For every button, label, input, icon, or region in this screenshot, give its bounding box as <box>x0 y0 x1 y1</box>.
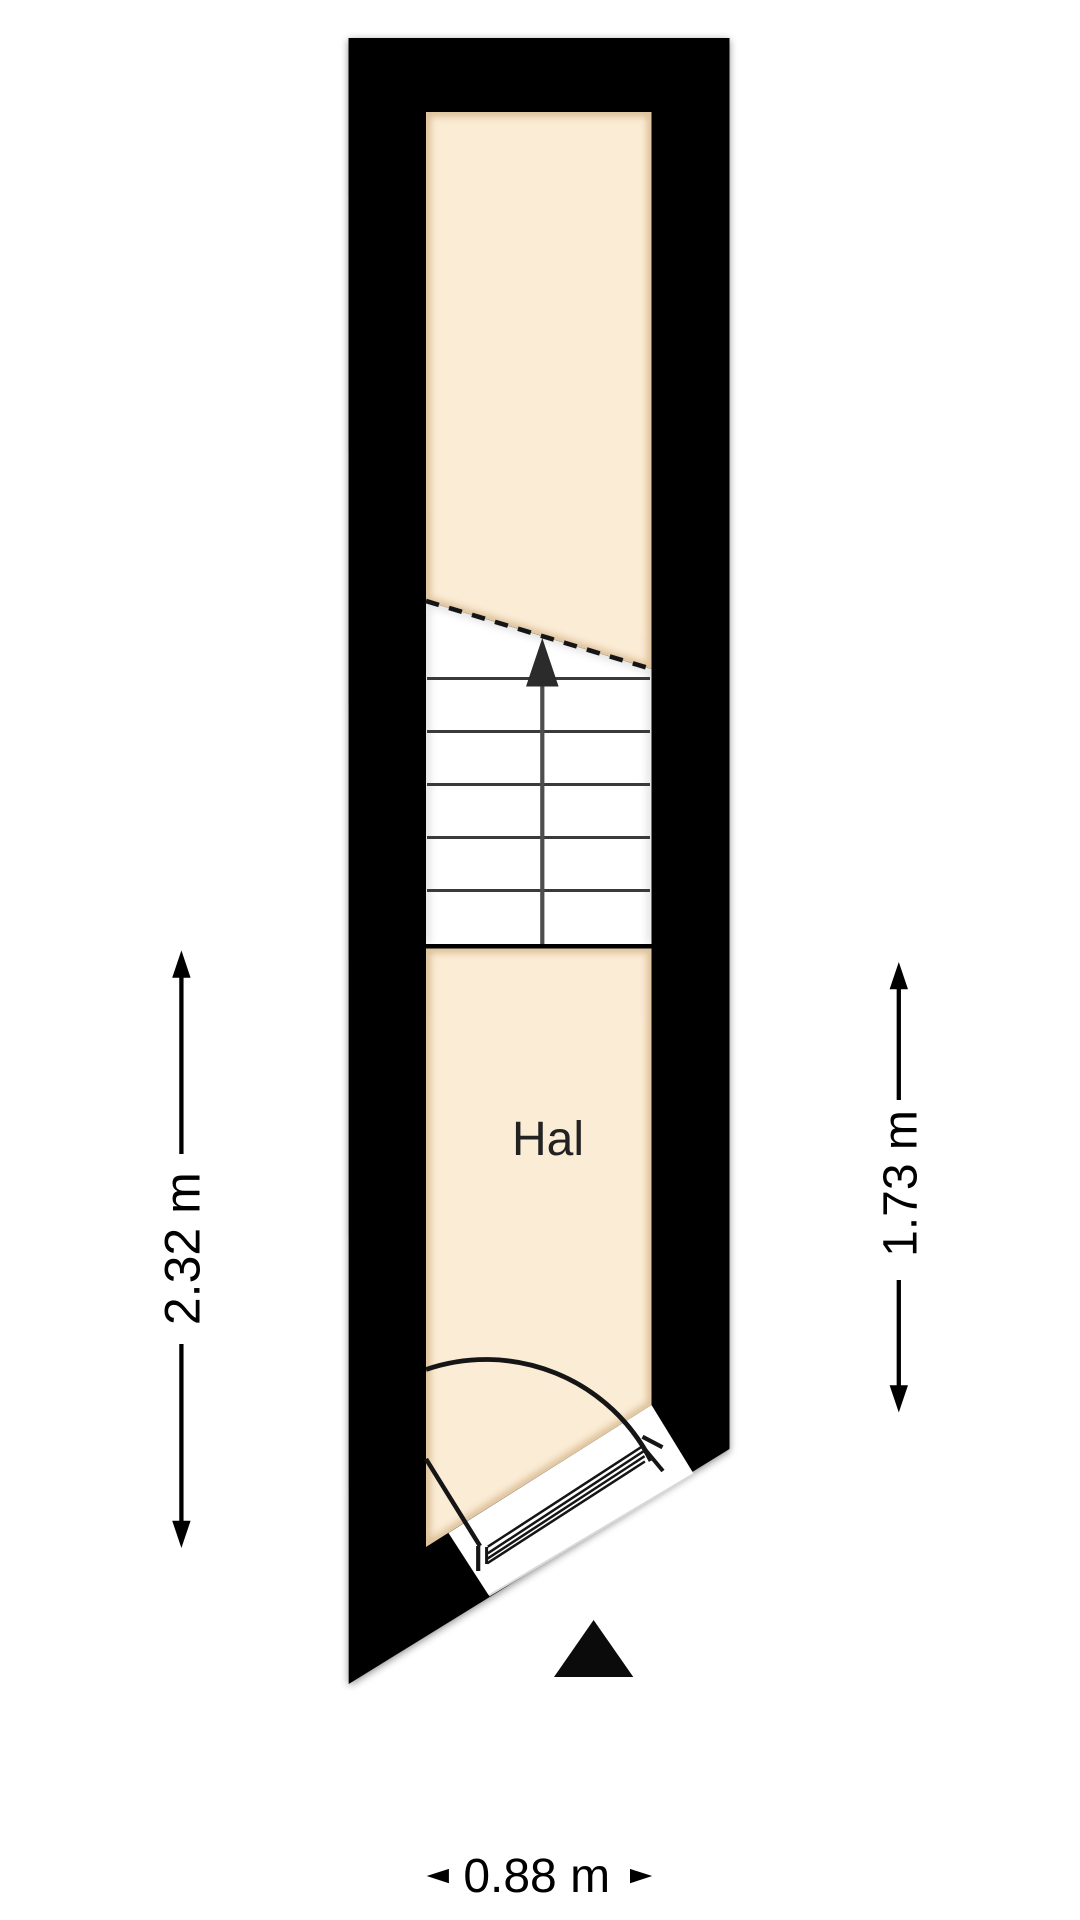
svg-text:1.73 m: 1.73 m <box>875 1110 928 1257</box>
svg-text:2.32 m: 2.32 m <box>155 1172 211 1325</box>
svg-text:Hal: Hal <box>512 1113 584 1166</box>
svg-text:0.88 m: 0.88 m <box>463 1850 610 1903</box>
